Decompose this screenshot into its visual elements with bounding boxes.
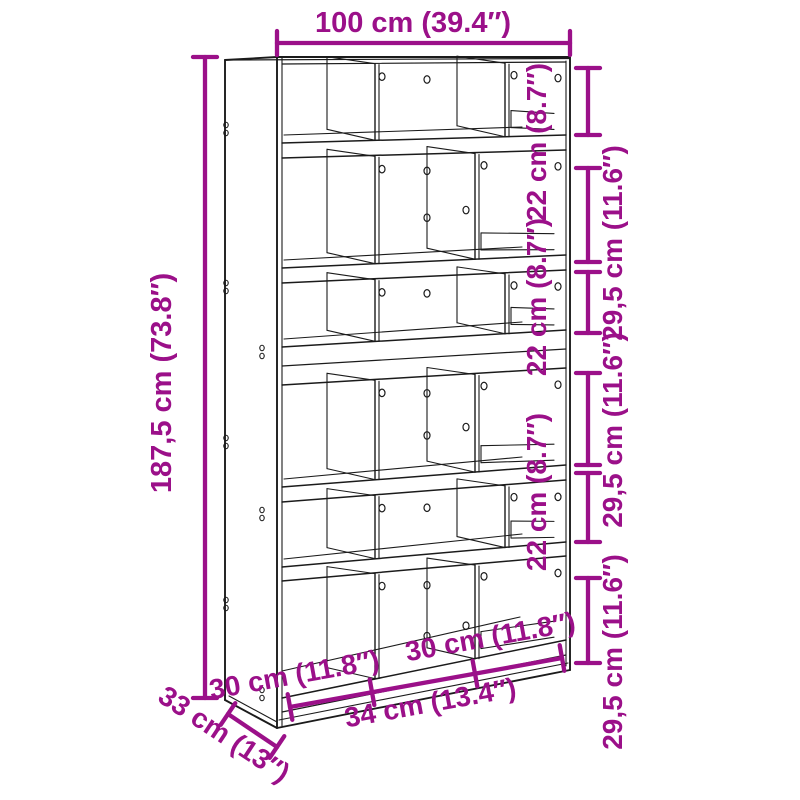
dim-right-segment-1: 29,5 cm (11.6″) xyxy=(576,145,628,341)
dim-label-right-1: 29,5 cm (11.6″) xyxy=(597,145,628,341)
dim-right-segment-5: 29,5 cm (11.6″) xyxy=(576,554,628,750)
dim-label-right-0: 22 cm (8.7″) xyxy=(521,63,552,221)
dim-label-width-top: 100 cm (39.4″) xyxy=(315,7,511,39)
dim-width-top: 100 cm (39.4″) xyxy=(277,7,570,55)
bookcase-dimension-diagram: 100 cm (39.4″)187,5 cm (73.8″)22 cm (8.7… xyxy=(0,0,800,800)
dim-label-right-3: 29,5 cm (11.6″) xyxy=(597,332,628,528)
dim-height-left: 187,5 cm (73.8″) xyxy=(146,57,217,698)
dim-label-right-2: 22 cm (8.7″) xyxy=(521,218,552,376)
dim-right-segments: 22 cm (8.7″)29,5 cm (11.6″)22 cm (8.7″)2… xyxy=(521,63,628,750)
dim-right-segment-3: 29,5 cm (11.6″) xyxy=(576,332,628,528)
dim-label-right-5: 29,5 cm (11.6″) xyxy=(597,554,628,750)
diagram-container: 100 cm (39.4″)187,5 cm (73.8″)22 cm (8.7… xyxy=(0,0,800,800)
dim-label-right-4: 22 cm (8.7″) xyxy=(521,413,552,571)
dim-label-height-left: 187,5 cm (73.8″) xyxy=(146,273,178,493)
